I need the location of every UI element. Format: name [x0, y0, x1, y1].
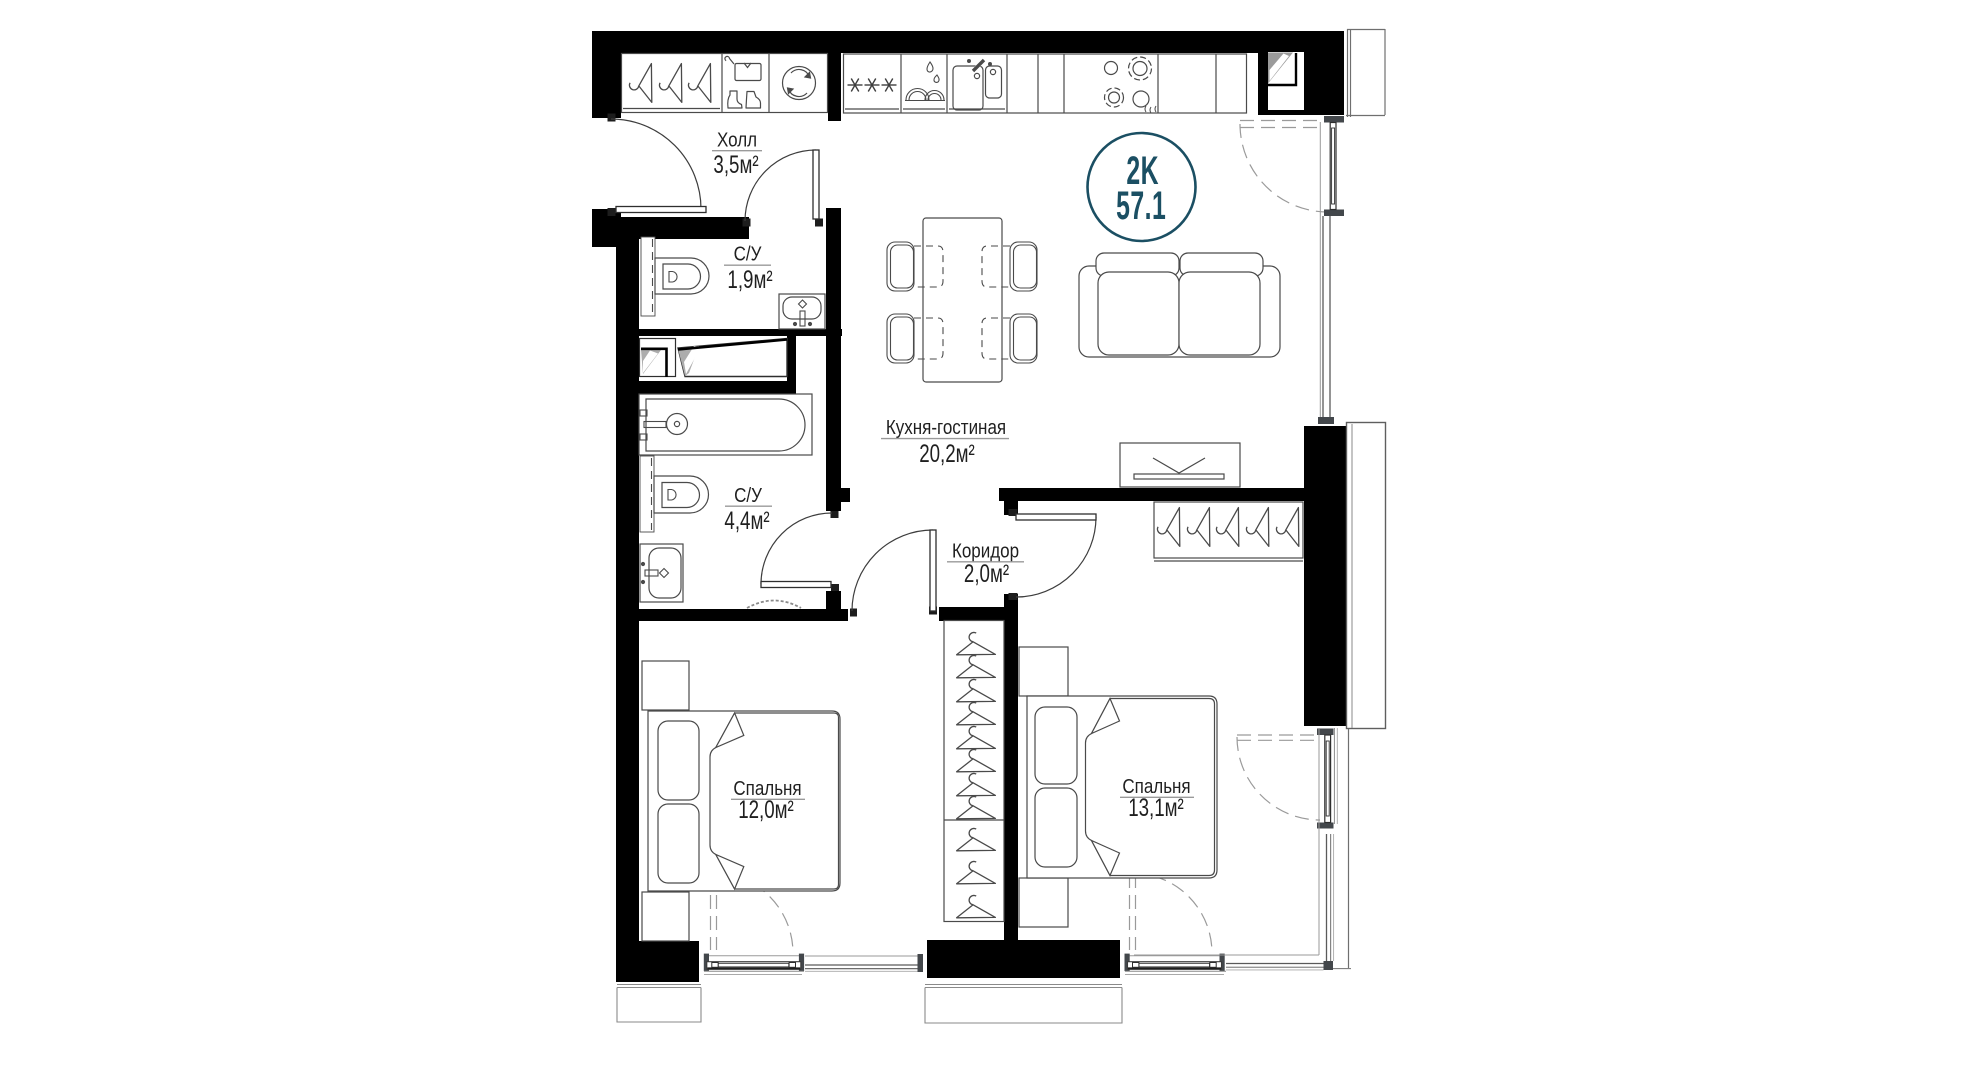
svg-text:4,4м²: 4,4м² — [724, 506, 769, 534]
svg-text:2,0м²: 2,0м² — [964, 559, 1009, 587]
svg-text:13,1м²: 13,1м² — [1128, 793, 1184, 821]
svg-text:12,0м²: 12,0м² — [738, 795, 794, 823]
svg-text:Холл: Холл — [717, 128, 757, 151]
svg-text:С/У: С/У — [734, 484, 762, 507]
svg-text:20,2м²: 20,2м² — [919, 439, 975, 467]
svg-text:Кухня-гостиная: Кухня-гостиная — [886, 416, 1006, 439]
svg-text:1,9м²: 1,9м² — [727, 265, 772, 293]
svg-text:С/У: С/У — [734, 242, 762, 265]
svg-text:3,5м²: 3,5м² — [713, 150, 758, 178]
svg-text:57.1: 57.1 — [1116, 184, 1166, 228]
